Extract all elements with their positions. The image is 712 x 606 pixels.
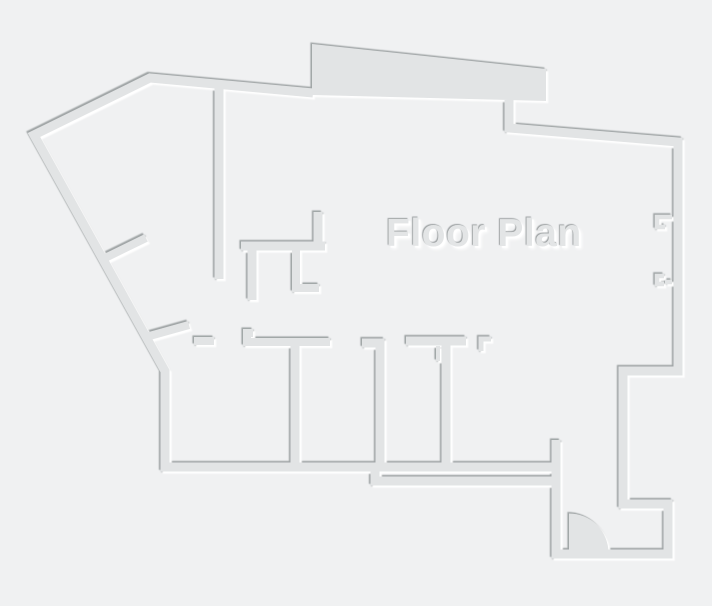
wall-band-top <box>312 44 546 101</box>
door-swing-arc <box>569 514 609 554</box>
wall-segment-mid-room-lower-stub-right <box>296 248 319 288</box>
floor-plan-title: Floor Plan <box>386 212 582 256</box>
wall-segment-room-divider-2-with-jamb <box>362 343 380 467</box>
walls-group <box>34 44 678 554</box>
floor-plan-svg <box>0 0 712 606</box>
wall-segment-right-wall-recess-lower-a <box>657 276 664 284</box>
wall-segment-diagonal-jamb-upper <box>101 238 146 260</box>
wall-segment-outline-right-and-door-wall <box>509 100 678 554</box>
wall-segment-bottom-apron-wall <box>375 470 552 481</box>
floor-plan-canvas: Floor Plan <box>0 0 712 606</box>
wall-segment-diagonal-jamb-lower <box>146 325 189 337</box>
wall-segment-room4-entry-jamb <box>481 339 491 351</box>
wall-segment-right-wall-recess-upper <box>657 217 672 227</box>
wall-segment-room1-room2-top-wall <box>247 333 330 342</box>
